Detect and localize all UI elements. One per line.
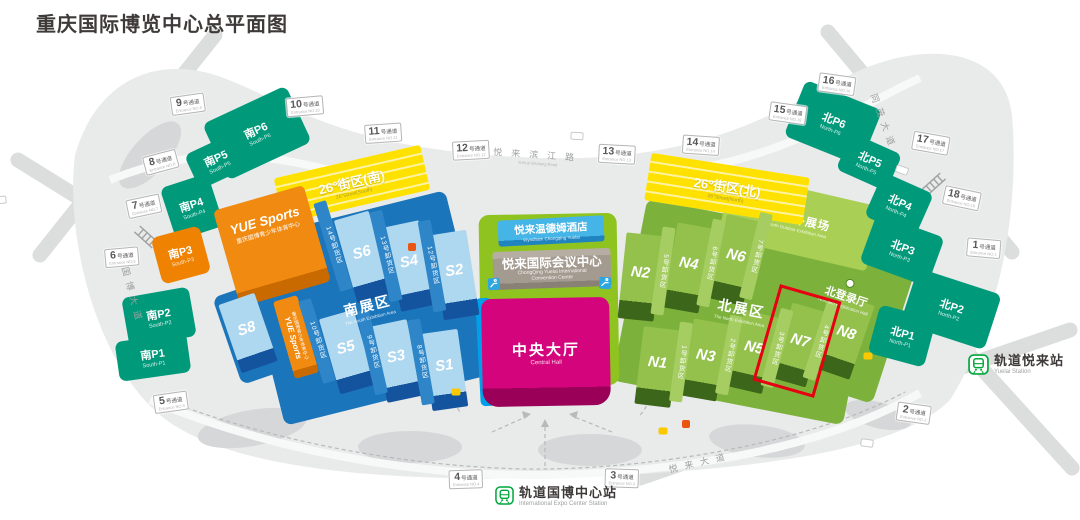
bus-stop-icon xyxy=(452,389,461,396)
passage-en: Entrance NO.6 xyxy=(109,259,136,265)
hall-label: N8 xyxy=(835,321,859,343)
metro-icon xyxy=(968,354,989,375)
passage-14[interactable]: 14号通道Entrance NO.14 xyxy=(682,134,720,155)
road-marker-icon xyxy=(570,132,583,141)
convention-label-en2: Convention Center xyxy=(531,275,573,282)
central-hall-label-en: Central Hall xyxy=(530,359,561,366)
convention-center[interactable]: 悦来国际会议中心 ChongQing Yuelai International … xyxy=(492,248,611,290)
station-expo-center[interactable]: 轨道国博中心站International Expo Center Station xyxy=(495,486,617,508)
bus-stop-icon xyxy=(659,428,668,435)
station-name: 轨道国博中心站 xyxy=(519,486,617,501)
gate-icon xyxy=(408,243,416,251)
passage-en: Entrance NO.1 xyxy=(970,250,997,256)
road-marker-icon xyxy=(0,195,7,204)
hall-label: S4 xyxy=(398,251,419,271)
escalator-icon xyxy=(488,277,501,296)
passage-13[interactable]: 13号通道Entrance NO.13 xyxy=(598,144,636,164)
escalator-icon xyxy=(599,276,612,295)
passage-en: Entrance NO.10 xyxy=(291,108,320,114)
passage-11[interactable]: 11号通道Entrance NO.11 xyxy=(364,122,402,143)
hall-label: N4 xyxy=(678,253,700,273)
hall-label: S8 xyxy=(235,317,258,339)
hall-label: N6 xyxy=(725,245,748,266)
station-name: 轨道悦来站 xyxy=(994,354,1064,369)
passage-10[interactable]: 10号通道Entrance NO.10 xyxy=(286,95,325,117)
expo-master-plan-map: 重庆国际博览中心总平面图 北室外展场 North Outdoor Exhibit… xyxy=(0,0,1080,520)
passage-en: Entrance NO.4 xyxy=(453,482,480,487)
station-name-en: Yuelai Station xyxy=(994,369,1064,376)
hall-label: S5 xyxy=(334,336,356,357)
passage-4[interactable]: 4号通道Entrance NO.4 xyxy=(448,469,483,489)
wyndham-hotel[interactable]: 悦来温德姆酒店 Wyndham Chongqing Yuelai xyxy=(497,215,604,247)
road-marker-icon xyxy=(860,438,874,448)
hall-label: S2 xyxy=(444,260,465,280)
hall-label: S1 xyxy=(434,355,455,374)
hall-label: N3 xyxy=(695,345,717,365)
station-yuelai[interactable]: 轨道悦来站Yuelai Station xyxy=(968,354,1064,376)
passage-1[interactable]: 1号通道Entrance NO.1 xyxy=(966,237,1002,258)
station-name-en: International Expo Center Station xyxy=(519,501,617,508)
hall-label: N2 xyxy=(630,263,651,282)
gate-icon xyxy=(682,420,690,428)
passage-en: Entrance NO.13 xyxy=(602,156,631,161)
central-hall-label: 中央大厅 xyxy=(512,338,580,360)
passage-en: Entrance NO.14 xyxy=(686,147,715,153)
passage-6[interactable]: 6号通道Entrance NO.6 xyxy=(104,246,140,267)
passage-12[interactable]: 12号通道Entrance NO.12 xyxy=(452,140,490,160)
hall-label: N1 xyxy=(647,352,668,371)
hall-label: S6 xyxy=(350,241,372,262)
passage-en: Entrance NO.11 xyxy=(369,135,398,141)
page-title: 重庆国际博览中心总平面图 xyxy=(36,8,288,37)
hall-label: S3 xyxy=(385,346,406,366)
bus-stop-icon xyxy=(864,353,873,360)
passage-en: Entrance NO.12 xyxy=(457,152,486,157)
central-hall[interactable]: 中央大厅 Central Hall xyxy=(481,297,611,407)
metro-icon xyxy=(495,486,514,505)
